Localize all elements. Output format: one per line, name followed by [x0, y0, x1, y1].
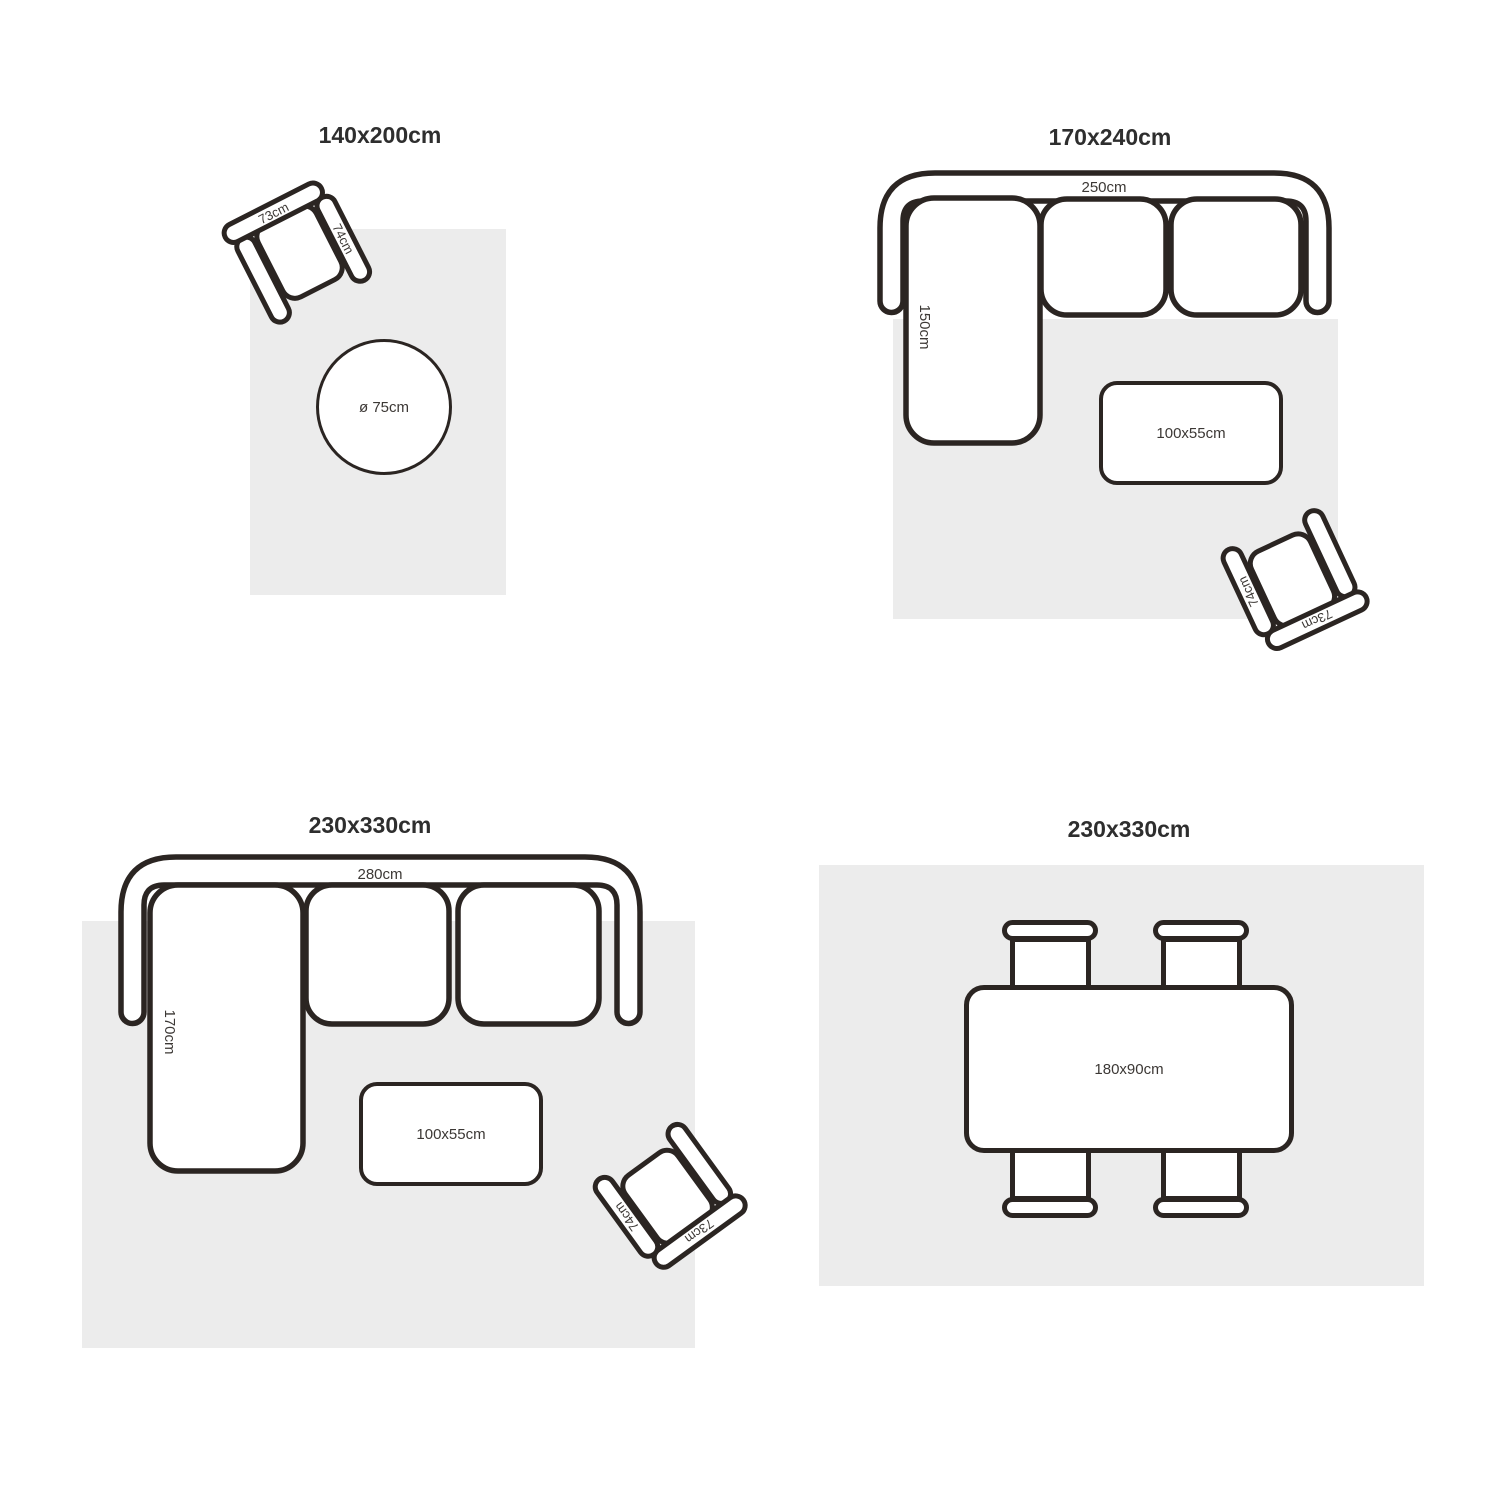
- dining-chair-bottom-right: [1153, 1147, 1249, 1218]
- dining-chair-seat: [1010, 1147, 1091, 1201]
- round-side-table: ø 75cm: [316, 339, 452, 475]
- dining-chair-top-left: [1002, 920, 1098, 991]
- dining-chair-backrest: [1153, 1197, 1249, 1218]
- coffee-table-top-right: 100x55cm: [1099, 381, 1283, 485]
- sofa-chaise-dimension: 150cm: [916, 304, 933, 349]
- dining-chair-seat: [1010, 937, 1091, 991]
- dining-table-dimension: 180x90cm: [1094, 1061, 1163, 1078]
- rug-size-guide: 140x200cm 73cm 74cm ø 75cm 170x240cm 250…: [0, 0, 1500, 1500]
- rug-size-title-top-left: 140x200cm: [250, 122, 510, 149]
- dining-chair-backrest: [1002, 1197, 1098, 1218]
- sofa-cushion: [458, 885, 599, 1024]
- dining-chair-backrest: [1153, 920, 1249, 941]
- coffee-table-dimension: 100x55cm: [1156, 425, 1225, 442]
- rug-size-title-bottom-left: 230x330cm: [240, 812, 500, 839]
- dining-chair-seat: [1161, 937, 1242, 991]
- sofa-width-dimension: 250cm: [1081, 179, 1126, 196]
- sofa-cushion: [1171, 199, 1301, 315]
- round-side-table-dimension: ø 75cm: [359, 399, 409, 416]
- rug-size-title-bottom-right: 230x330cm: [999, 816, 1259, 843]
- rug-size-title-top-right: 170x240cm: [980, 124, 1240, 151]
- dining-chair-seat: [1161, 1147, 1242, 1201]
- sofa-width-dimension: 280cm: [357, 866, 402, 883]
- coffee-table-dimension: 100x55cm: [416, 1126, 485, 1143]
- sofa-chaise-dimension: 170cm: [161, 1009, 178, 1054]
- dining-chair-top-right: [1153, 920, 1249, 991]
- dining-chair-backrest: [1002, 920, 1098, 941]
- dining-table: 180x90cm: [964, 985, 1294, 1153]
- sofa-cushion: [306, 885, 449, 1024]
- coffee-table-bottom-left: 100x55cm: [359, 1082, 543, 1186]
- dining-chair-bottom-left: [1002, 1147, 1098, 1218]
- sofa-cushion: [1041, 199, 1166, 315]
